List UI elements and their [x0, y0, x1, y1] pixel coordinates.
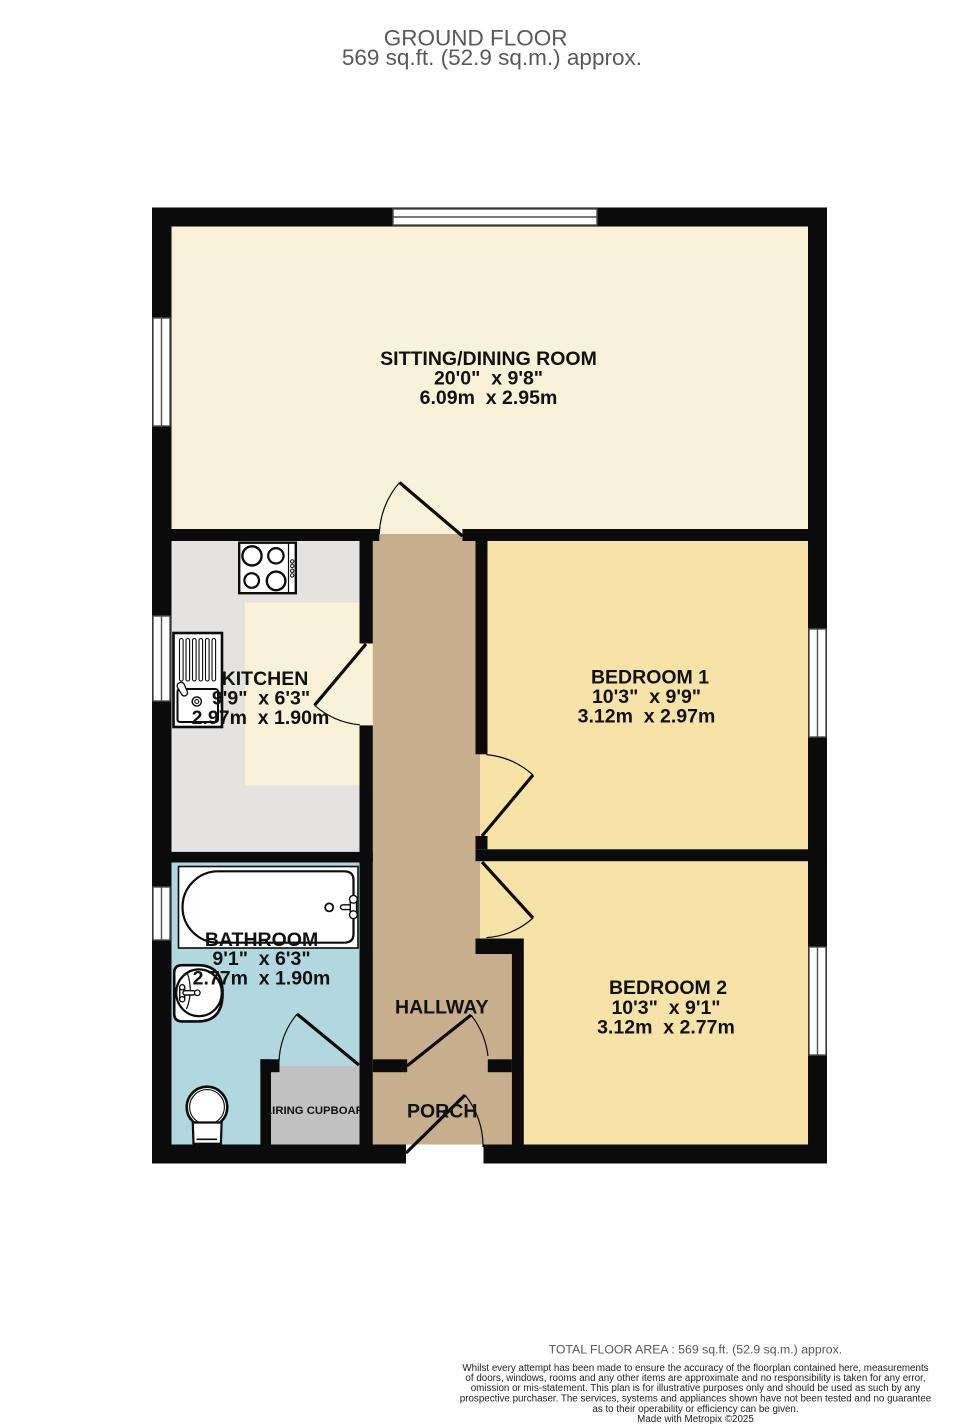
svg-text:3.12m x 2.97m: 3.12m x 2.97m	[578, 706, 716, 728]
svg-text:569 sq.ft. (52.9 sq.m.) approx: 569 sq.ft. (52.9 sq.m.) approx.	[342, 45, 642, 70]
svg-text:HALLWAY: HALLWAY	[395, 997, 489, 1019]
svg-text:BEDROOM 2: BEDROOM 2	[609, 977, 727, 999]
svg-text:PORCH: PORCH	[407, 1101, 477, 1123]
svg-text:omission or mis-statement. Thi: omission or mis-statement. This plan is …	[471, 1383, 921, 1394]
svg-text:3.12m x 2.77m: 3.12m x 2.77m	[597, 1017, 735, 1039]
svg-text:6.09m x 2.95m: 6.09m x 2.95m	[420, 387, 558, 409]
svg-text:2.77m x 1.90m: 2.77m x 1.90m	[193, 968, 331, 990]
svg-text:Made with Metropix ©2025: Made with Metropix ©2025	[637, 1414, 754, 1425]
svg-text:2.97m x 1.90m: 2.97m x 1.90m	[192, 707, 330, 729]
svg-text:TOTAL FLOOR AREA : 569 sq.ft.: TOTAL FLOOR AREA : 569 sq.ft. (52.9 sq.m…	[549, 1343, 843, 1357]
svg-text:10'3" x 9'1": 10'3" x 9'1"	[611, 997, 720, 1019]
svg-text:AIRING CUPBOARD: AIRING CUPBOARD	[264, 1105, 372, 1117]
